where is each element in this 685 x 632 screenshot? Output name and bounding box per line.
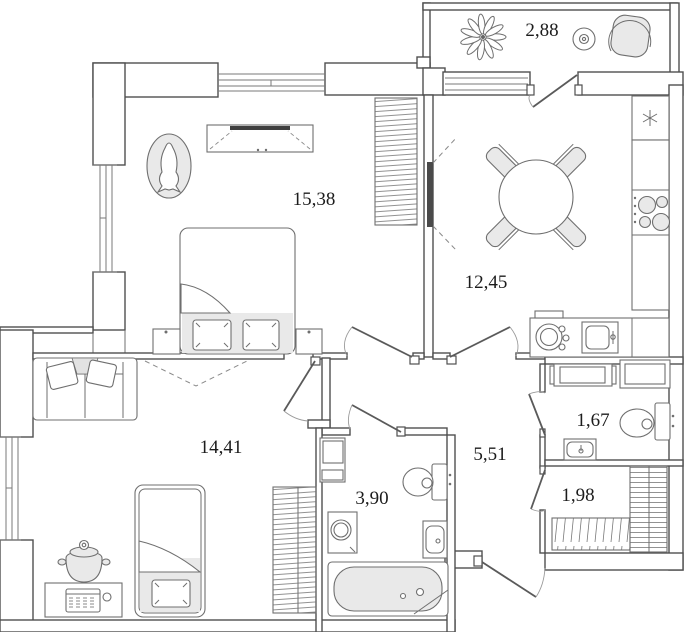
tv-stand-icon [207, 125, 313, 152]
wall-hall-east-b [540, 435, 545, 468]
wall-left-pillar-lower [93, 272, 125, 330]
room-hallway: 5,51 [473, 444, 506, 465]
kettle-icon [536, 324, 569, 350]
room-living: 14,41 [33, 358, 316, 617]
kitchen-sink-icon [582, 322, 618, 353]
door-balcony [527, 75, 582, 107]
room-kitchen: 12,45 [465, 96, 670, 357]
wall-bottom-right [545, 553, 683, 570]
area-label-bathroom: 3,90 [355, 488, 388, 509]
area-label-toilet: 1,67 [576, 410, 609, 431]
mouse-icon [103, 593, 111, 601]
area-label-living: 14,41 [200, 437, 243, 458]
wall-balcony-notch [417, 57, 430, 68]
shelf-icon [550, 364, 616, 386]
wall-hall-east-a [540, 364, 545, 392]
armchair-icon [609, 14, 652, 59]
window-bedroom-top [218, 74, 325, 91]
table-icon [499, 160, 573, 234]
desk-icon [45, 583, 122, 617]
area-label-kitchen: 12,45 [465, 272, 508, 293]
storage-shelves-icon [552, 466, 667, 552]
wall-top-right-block [325, 63, 430, 95]
room-bathroom: 3,90 [320, 438, 451, 616]
wc-sink-icon [564, 439, 596, 460]
plant-icon [460, 14, 506, 60]
washing-machine-icon [328, 512, 357, 553]
area-label-storage: 1,98 [561, 485, 594, 506]
wall-corridor-west [322, 358, 330, 428]
toilet-icon [403, 464, 451, 500]
window-balcony [443, 72, 530, 95]
wardrobe-living-icon [273, 487, 316, 613]
single-bed-icon [135, 485, 205, 617]
area-label-balcony: 2,88 [525, 20, 558, 41]
stool-icon [573, 28, 595, 50]
wall-bottom [0, 620, 455, 632]
room-bedroom: 15,38 [147, 98, 417, 354]
door-storage [531, 466, 545, 511]
rug-icon [147, 134, 191, 198]
wall-bathroom-top-b [400, 428, 447, 435]
floor-plan: 2,88 [0, 0, 685, 632]
area-label-bedroom: 15,38 [293, 189, 336, 210]
wall-kitchen-top [578, 72, 683, 95]
door-bathroom [348, 405, 405, 436]
fridge-icon [632, 96, 669, 140]
wall-left-lower [0, 540, 33, 632]
wall-balcony-bottom-left [423, 68, 445, 95]
wall-hall-east-c [540, 510, 545, 553]
area-label-hallway: 5,51 [473, 444, 506, 465]
door-kitchen [447, 327, 518, 364]
door-bedroom [344, 327, 419, 364]
door-toilet [529, 392, 545, 437]
door-entrance [474, 556, 545, 597]
room-balcony: 2,88 [460, 14, 652, 61]
wall-corridor-stub [308, 420, 330, 428]
nightstand-icon [296, 329, 322, 354]
pillow [243, 320, 279, 350]
wall-left-pillar-upper [93, 63, 125, 165]
sofa-icon [33, 358, 137, 420]
double-bed-icon [180, 228, 295, 354]
cabinet-icon [320, 438, 345, 482]
window-living-left [0, 437, 21, 540]
bathroom-sink-icon [423, 521, 447, 558]
pot-icon [58, 541, 110, 583]
room-storage: 1,98 [552, 466, 667, 552]
dining-set-icon [484, 143, 588, 251]
nightstand-icon [153, 329, 180, 354]
wall-wc-storage [545, 460, 683, 466]
wall-opening-marker [427, 162, 433, 227]
door-living-room [284, 357, 320, 421]
pillow [193, 320, 231, 350]
toilet-icon [620, 403, 674, 440]
wall-right [669, 85, 683, 570]
pillow [152, 580, 190, 607]
bathtub-icon [328, 562, 448, 616]
room-toilet: 1,67 [550, 360, 674, 460]
cabinet-icon [620, 360, 670, 388]
wardrobe-bedroom-icon [375, 98, 417, 225]
laptop-icon [66, 589, 100, 612]
wall-balcony-top [423, 3, 677, 10]
wall-left-upper [0, 330, 33, 437]
wall-bathroom-top-a [322, 428, 350, 435]
window-bedroom-left [93, 165, 117, 272]
